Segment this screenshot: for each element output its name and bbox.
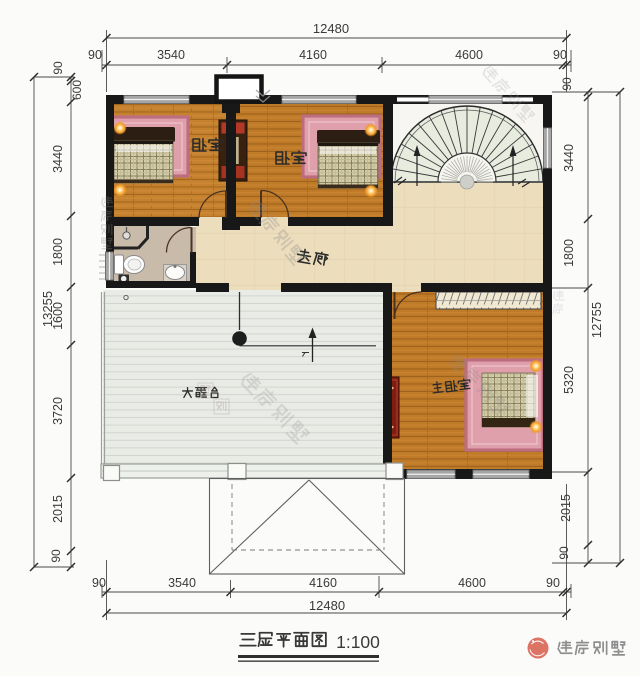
svg-text:3440: 3440 [562,144,576,172]
svg-text:1800: 1800 [562,239,576,267]
svg-text:90: 90 [560,77,574,91]
svg-text:4600: 4600 [458,576,486,590]
svg-text:1600: 1600 [51,302,65,330]
svg-text:1800: 1800 [51,238,65,266]
svg-text:4600: 4600 [455,48,483,62]
svg-text:90: 90 [92,576,106,590]
svg-text:5320: 5320 [562,366,576,394]
svg-text:1:100: 1:100 [336,632,380,652]
svg-text:90: 90 [49,549,63,563]
svg-text:12480: 12480 [309,598,345,613]
svg-text:3720: 3720 [51,397,65,425]
svg-text:90: 90 [51,61,65,75]
svg-text:4160: 4160 [299,48,327,62]
svg-text:3540: 3540 [157,48,185,62]
svg-text:90: 90 [88,48,102,62]
svg-text:12755: 12755 [589,302,604,338]
svg-text:2015: 2015 [559,494,573,522]
svg-text:12480: 12480 [313,21,349,36]
svg-text:3440: 3440 [51,145,65,173]
svg-text:90: 90 [546,576,560,590]
svg-text:2015: 2015 [51,495,65,523]
svg-text:3540: 3540 [168,576,196,590]
svg-text:90: 90 [553,48,567,62]
svg-text:4160: 4160 [309,576,337,590]
svg-text:600: 600 [70,80,84,100]
svg-text:90: 90 [557,546,571,560]
